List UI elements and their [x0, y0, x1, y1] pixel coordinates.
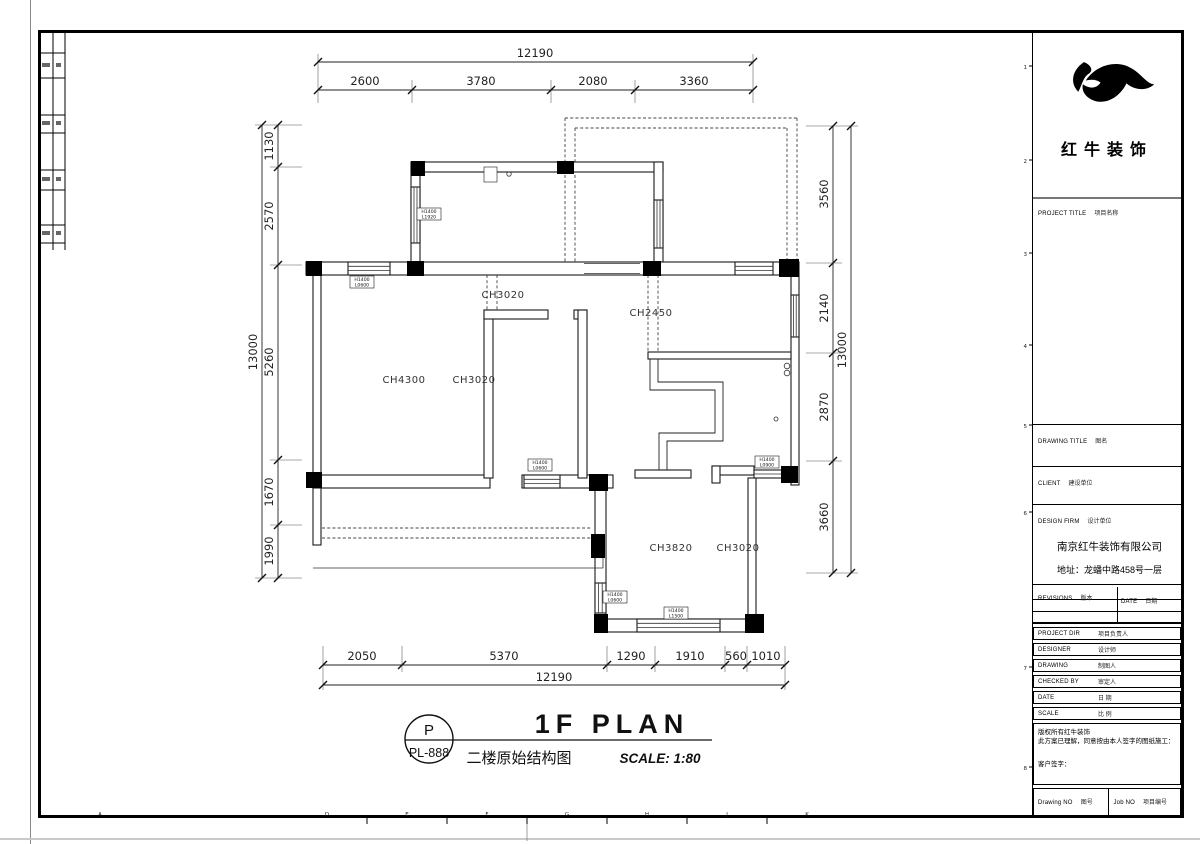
dimensions-bottom: 2050 5370 1290 1910 560 1010 12190 [319, 646, 789, 690]
svg-text:A: A [98, 812, 102, 818]
date-row: DATE日 期 [1033, 691, 1181, 704]
titleblock-drawing-title-row: DRAWING TITLE图名 [1033, 427, 1181, 467]
bubble-code: PL-888 [409, 746, 449, 760]
svg-text:H1400: H1400 [607, 592, 622, 598]
svg-text:1990: 1990 [262, 536, 276, 565]
designer-row: DESIGNER设计师 [1033, 643, 1181, 656]
drawing-row: DRAWING制图人 [1033, 659, 1181, 672]
svg-text:1910: 1910 [675, 649, 704, 663]
svg-text:L0900: L0900 [760, 463, 774, 469]
title-block: 红牛装饰 PROJECT TITLE项目名称 DRAWING TITLE图名 C… [1032, 33, 1181, 815]
project-title-label-en: PROJECT TITLE [1038, 211, 1086, 217]
plan-scale: SCALE: 1:80 [619, 751, 701, 766]
svg-text:12190: 12190 [536, 670, 573, 684]
svg-text:3560: 3560 [817, 179, 831, 208]
svg-text:L0600: L0600 [608, 598, 622, 604]
room-label: CH3020 [717, 543, 760, 554]
svg-text:13000: 13000 [835, 332, 849, 369]
drawing-sheet: CH3020 CH2450 CH4300 CH3020 CH3820 CH302… [0, 0, 1200, 844]
svg-text:F: F [485, 812, 488, 818]
svg-text:L0600: L0600 [355, 283, 369, 289]
svg-text:J: J [725, 812, 728, 818]
svg-text:D: D [325, 812, 329, 818]
checked-by-row: CHECKED BY审定人 [1033, 675, 1181, 688]
brand-name: 红牛装饰 [1033, 136, 1181, 160]
svg-text:G: G [565, 812, 569, 818]
walls [306, 162, 799, 632]
svg-text:5370: 5370 [489, 649, 518, 663]
svg-text:5260: 5260 [262, 347, 276, 376]
svg-text:E: E [405, 812, 409, 818]
red-bull-logo-icon [1055, 51, 1159, 125]
svg-text:560: 560 [725, 649, 747, 663]
svg-text:H1400: H1400 [759, 457, 774, 463]
scale-row: SCALE比 例 [1033, 707, 1181, 720]
svg-text:2570: 2570 [262, 201, 276, 230]
svg-text:2: 2 [1024, 159, 1028, 165]
svg-text:2140: 2140 [817, 293, 831, 322]
dimensions-top: 12190 2600 3780 2080 3360 [314, 46, 757, 103]
svg-text:H1400: H1400 [354, 277, 369, 283]
svg-text:7: 7 [1024, 666, 1028, 672]
svg-text:K: K [805, 812, 809, 818]
job-no-cell: Job NO项目编号 [1109, 788, 1181, 816]
company-address: 地址：龙蟠中路458号一层 [1038, 563, 1181, 576]
svg-text:H1400: H1400 [421, 209, 436, 215]
svg-text:L1500: L1500 [669, 614, 683, 620]
svg-text:2050: 2050 [347, 649, 376, 663]
dimensions-left: 13000 1130 2570 5260 1670 1990 [246, 121, 302, 582]
room-label: CH3020 [482, 290, 525, 301]
plan-title-bar: P PL-888 1F PLAN 二楼原始结构图 SCALE: 1:80 [405, 709, 712, 767]
company-name: 南京红牛装饰有限公司 [1038, 539, 1181, 554]
svg-text:H1400: H1400 [668, 608, 683, 614]
revision-row [1033, 612, 1181, 624]
titleblock-client-row: CLIENT建设单位 [1033, 469, 1181, 505]
columns [306, 161, 799, 633]
svg-text:3: 3 [1024, 252, 1028, 258]
svg-text:2870: 2870 [817, 392, 831, 421]
room-label: CH3020 [453, 375, 496, 386]
left-edge-strip [38, 30, 65, 250]
drawing-number-row: Drawing NO图号 Job NO项目编号 [1033, 788, 1181, 816]
svg-text:3780: 3780 [466, 74, 495, 88]
copyright-notes: 版权所有红牛装饰 此方案已理解，同意按由本人签字的图纸施工： 客户签字： [1033, 723, 1181, 785]
svg-text:1130: 1130 [262, 131, 276, 160]
titleblock-signature-rows: PROJECT DIR项目负责人 DESIGNER设计师 DRAWING制图人 … [1033, 627, 1181, 723]
svg-text:3660: 3660 [817, 502, 831, 531]
svg-text:2080: 2080 [578, 74, 607, 88]
svg-text:13000: 13000 [246, 334, 260, 371]
plan-title: 1F PLAN [535, 709, 690, 739]
svg-text:4: 4 [1024, 344, 1028, 350]
svg-text:8: 8 [1024, 766, 1028, 772]
plan-subtitle: 二楼原始结构图 [466, 750, 571, 767]
svg-text:1: 1 [1024, 65, 1028, 71]
titleblock-design-firm-row: DESIGN FIRM设计单位 南京红牛装饰有限公司 地址：龙蟠中路458号一层 [1033, 507, 1181, 585]
svg-text:12190: 12190 [517, 46, 554, 60]
client-signature-label: 客户签字： [1038, 758, 1177, 768]
svg-text:L0600: L0600 [533, 466, 547, 472]
svg-text:L1920: L1920 [422, 215, 436, 221]
svg-text:1290: 1290 [616, 649, 645, 663]
bubble-letter: P [424, 722, 434, 739]
svg-text:5: 5 [1024, 424, 1028, 430]
room-label: CH2450 [630, 308, 673, 319]
svg-text:6: 6 [1024, 511, 1028, 517]
svg-text:1670: 1670 [262, 477, 276, 506]
svg-text:2600: 2600 [350, 74, 379, 88]
room-label: CH4300 [383, 375, 426, 386]
room-labels: CH3020 CH2450 CH4300 CH3020 CH3820 CH302… [383, 290, 760, 554]
svg-text:H: H [645, 812, 649, 818]
floor-plan-drawing: CH3020 CH2450 CH4300 CH3020 CH3820 CH302… [0, 0, 1200, 844]
drawing-no-cell: Drawing NO图号 [1033, 788, 1109, 816]
revisions-table: REVISIONS版本 DATE日期 [1033, 587, 1181, 623]
svg-text:H1400: H1400 [532, 460, 547, 466]
logo-box: 红牛装饰 [1033, 33, 1181, 199]
svg-text:3360: 3360 [679, 74, 708, 88]
room-label: CH3820 [650, 543, 693, 554]
project-title-label-zh: 项目名称 [1094, 211, 1118, 217]
titleblock-project-title-row: PROJECT TITLE项目名称 [1033, 199, 1181, 425]
dimensions-right: 3560 2140 2870 3660 13000 [806, 122, 858, 577]
svg-text:1010: 1010 [751, 649, 780, 663]
project-dir-row: PROJECT DIR项目负责人 [1033, 627, 1181, 640]
